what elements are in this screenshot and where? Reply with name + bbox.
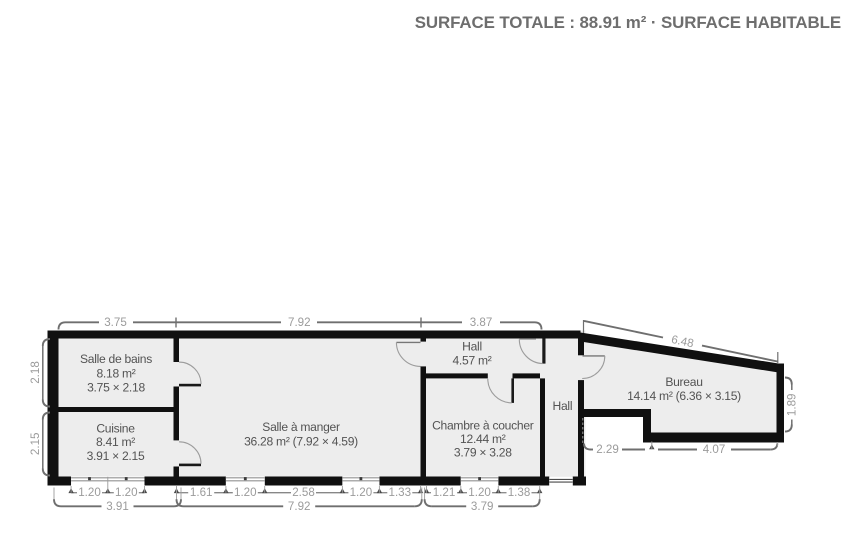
svg-text:2.58: 2.58 (292, 486, 315, 499)
svg-text:7.92: 7.92 (288, 316, 311, 329)
svg-text:Hall: Hall (553, 399, 573, 413)
svg-text:Hall: Hall (462, 339, 482, 353)
svg-text:12.44 m²: 12.44 m² (460, 432, 506, 446)
svg-text:1.33: 1.33 (389, 486, 412, 499)
svg-text:1.20: 1.20 (234, 486, 257, 499)
svg-text:3.87: 3.87 (470, 316, 493, 329)
svg-text:1.20: 1.20 (78, 486, 101, 499)
svg-text:3.75 × 2.18: 3.75 × 2.18 (87, 381, 145, 395)
svg-text:3.91: 3.91 (106, 500, 129, 513)
svg-text:8.41 m²: 8.41 m² (96, 435, 135, 449)
svg-text:2.15: 2.15 (29, 433, 42, 456)
svg-text:1.89: 1.89 (785, 394, 798, 417)
svg-text:4.57 m²: 4.57 m² (452, 353, 491, 367)
svg-text:3.91 × 2.15: 3.91 × 2.15 (87, 449, 145, 463)
svg-text:Chambre à coucher: Chambre à coucher (432, 418, 534, 432)
svg-text:1.20: 1.20 (350, 486, 373, 499)
svg-text:7.92: 7.92 (288, 500, 311, 513)
svg-text:1.61: 1.61 (190, 486, 213, 499)
svg-text:36.28 m² (7.92 × 4.59): 36.28 m² (7.92 × 4.59) (244, 434, 358, 448)
svg-text:Cuisine: Cuisine (96, 422, 135, 436)
svg-text:Salle de bains: Salle de bains (80, 352, 152, 366)
svg-text:1.21: 1.21 (433, 486, 456, 499)
svg-text:1.20: 1.20 (468, 486, 491, 499)
svg-text:4.07: 4.07 (703, 443, 726, 456)
svg-text:3.79: 3.79 (471, 500, 494, 513)
svg-text:Salle à manger: Salle à manger (262, 420, 340, 434)
svg-text:1.38: 1.38 (508, 486, 531, 499)
svg-text:Bureau: Bureau (665, 375, 702, 389)
svg-text:8.18 m²: 8.18 m² (96, 367, 135, 381)
svg-text:1.20: 1.20 (115, 486, 138, 499)
svg-text:2.29: 2.29 (596, 443, 619, 456)
svg-text:2.18: 2.18 (29, 361, 42, 384)
svg-text:14.14 m² (6.36 × 3.15): 14.14 m² (6.36 × 3.15) (627, 389, 741, 403)
svg-text:3.79 × 3.28: 3.79 × 3.28 (454, 446, 512, 460)
svg-text:3.75: 3.75 (104, 316, 127, 329)
svg-text:SURFACE TOTALE : 88.91 m² · SU: SURFACE TOTALE : 88.91 m² · SURFACE HABI… (415, 13, 841, 32)
